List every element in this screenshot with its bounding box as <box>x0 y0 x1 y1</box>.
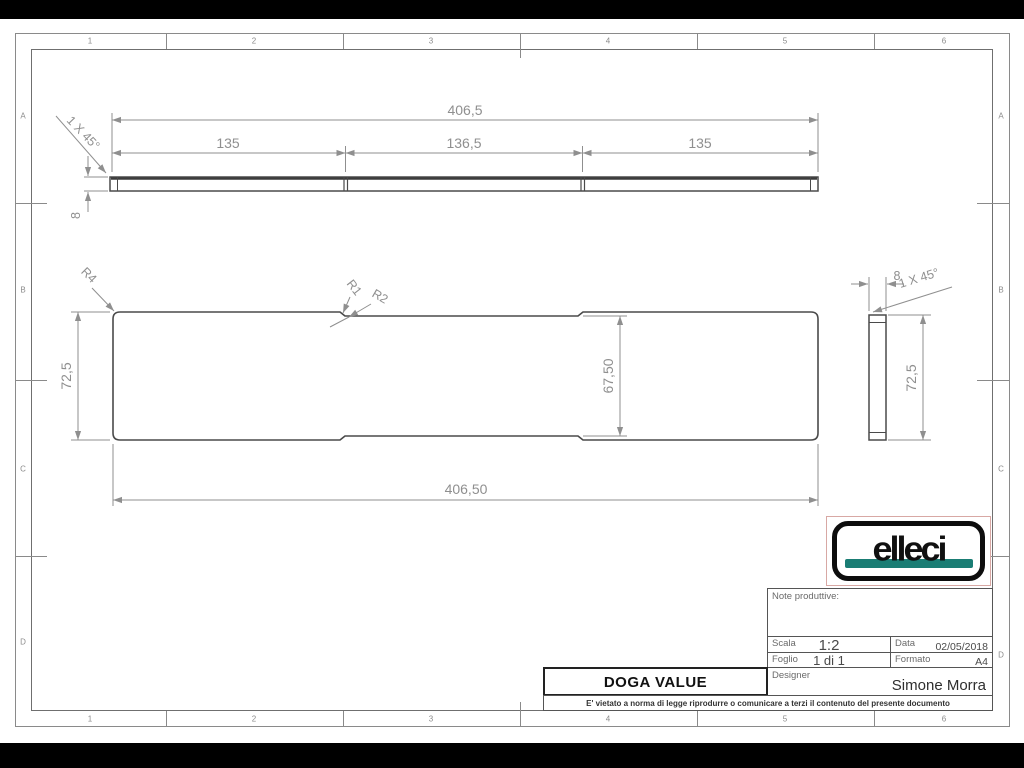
scala-cell: Scala 1:2 <box>767 636 891 653</box>
dim-front-height: 72,5 <box>58 362 74 389</box>
dim-top-seg-left: 135 <box>216 135 240 151</box>
designer-value: Simone Morra <box>892 677 986 694</box>
dim-top-thickness: 8 <box>69 212 83 219</box>
top-view-dimensions <box>56 113 818 212</box>
designer-cell: Designer Simone Morra <box>767 667 993 696</box>
logo-box: elleci <box>826 516 991 586</box>
logo-wordmark: elleci <box>837 529 980 569</box>
part-title: DOGA VALUE <box>545 674 766 691</box>
dim-top-seg-right: 135 <box>688 135 712 151</box>
drawing-sheet: 1 2 3 4 5 6 1 2 3 4 5 6 A B C D A B C D <box>0 0 1024 768</box>
disclaimer-text: E' vietato a norma di legge riprodurre o… <box>586 699 950 708</box>
part-title-box: DOGA VALUE <box>543 667 768 696</box>
dim-front-r2: R2 <box>370 286 391 306</box>
dim-front-total: 406,50 <box>445 481 488 497</box>
dim-front-inner-height: 67,50 <box>600 358 616 393</box>
top-view <box>110 177 818 191</box>
dim-side-chamfer: 1 X 45° <box>897 265 940 290</box>
note-label: Note produttive: <box>772 591 839 602</box>
foglio-value: 1 di 1 <box>768 653 890 668</box>
company-logo: elleci <box>832 521 985 581</box>
formato-label: Formato <box>895 654 930 665</box>
designer-label: Designer <box>772 670 810 681</box>
dim-front-r4: R4 <box>78 265 99 286</box>
data-label: Data <box>895 638 915 649</box>
disclaimer-box: E' vietato a norma di legge riprodurre o… <box>543 695 993 711</box>
dim-front-r1: R1 <box>344 277 365 298</box>
side-view-dimension-texts: 8 1 X 45° 72,5 <box>894 265 941 391</box>
note-box: Note produttive: <box>767 588 993 637</box>
formato-cell: Formato A4 <box>890 652 993 668</box>
side-view-dimensions <box>851 277 952 440</box>
side-view <box>869 315 886 440</box>
data-cell: Data 02/05/2018 <box>890 636 993 653</box>
dim-side-height: 72,5 <box>903 364 919 391</box>
front-view <box>113 312 818 440</box>
dim-top-seg-mid: 136,5 <box>446 135 481 151</box>
dim-top-total: 406,5 <box>447 102 482 118</box>
foglio-cell: Foglio 1 di 1 <box>767 652 891 668</box>
